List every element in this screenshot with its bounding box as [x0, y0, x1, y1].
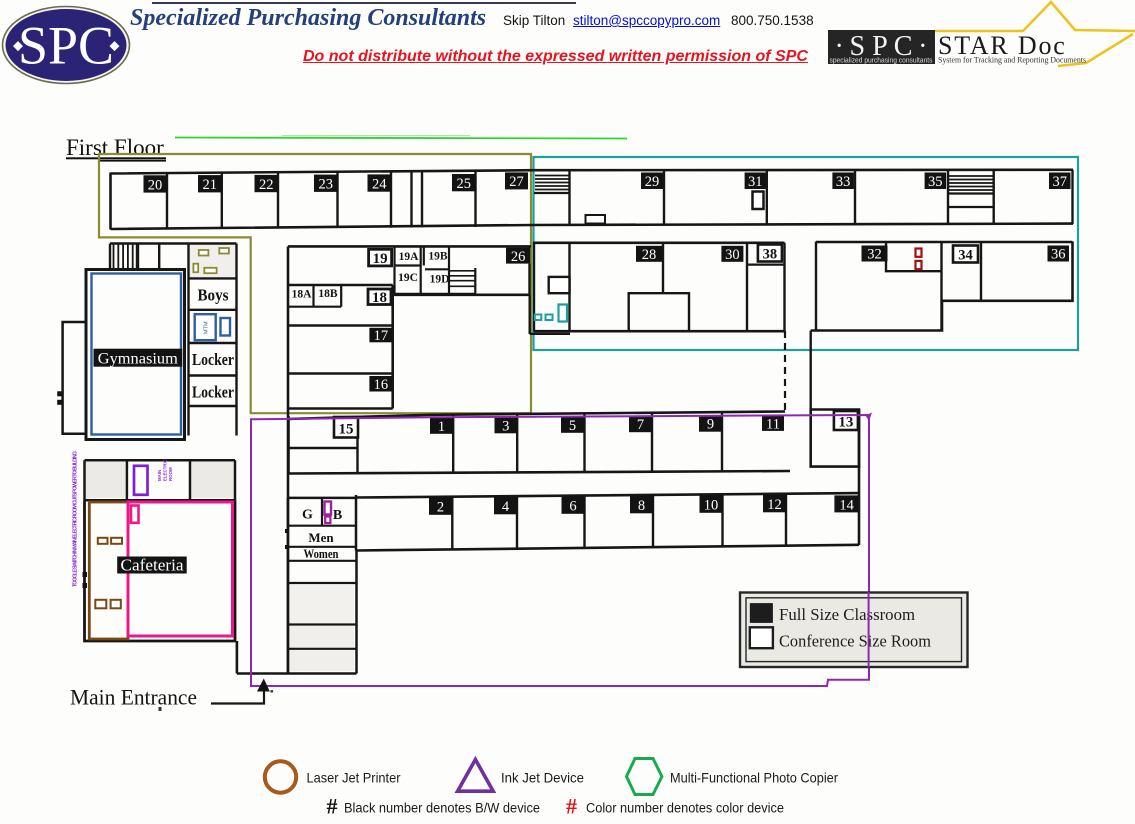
svg-text:16: 16	[374, 377, 389, 393]
svg-text:TOGGLE SWITCH IN MAIN ELECTRIC: TOGGLE SWITCH IN MAIN ELECTRIC ROOM CUTS…	[73, 451, 79, 587]
svg-text:19D: 19D	[430, 274, 450, 286]
svg-text:19B: 19B	[428, 251, 448, 263]
svg-text:#: #	[327, 794, 338, 819]
svg-text:ROOM: ROOM	[168, 467, 173, 481]
svg-text:33: 33	[836, 174, 851, 190]
svg-text:29: 29	[645, 174, 660, 190]
svg-text:27: 27	[509, 174, 524, 190]
svg-text:18A: 18A	[292, 289, 313, 301]
svg-text:3: 3	[502, 418, 509, 434]
svg-text:35: 35	[928, 174, 943, 190]
svg-text:19C: 19C	[398, 272, 418, 284]
svg-text:37: 37	[1052, 174, 1067, 190]
svg-text:24: 24	[372, 176, 387, 192]
svg-text:15: 15	[339, 422, 354, 438]
svg-text:ELECTRIC: ELECTRIC	[163, 458, 168, 481]
svg-text:Gymnasium: Gymnasium	[98, 351, 179, 368]
svg-text:Locker: Locker	[192, 383, 234, 402]
svg-text:22: 22	[259, 177, 274, 193]
svg-text:Locker: Locker	[192, 350, 234, 369]
svg-text:Boys: Boys	[198, 286, 230, 305]
svg-text:12: 12	[767, 497, 782, 513]
svg-text:19A: 19A	[399, 251, 420, 263]
svg-text:First Floor: First Floor	[66, 135, 164, 160]
svg-text:18: 18	[372, 290, 387, 306]
svg-text:28: 28	[642, 247, 657, 263]
svg-text:14: 14	[839, 497, 854, 513]
svg-text:◆: ◆	[13, 38, 23, 53]
svg-text:MAIN: MAIN	[157, 470, 162, 481]
svg-text:31: 31	[748, 174, 763, 190]
svg-text:7: 7	[637, 417, 644, 433]
svg-text:G: G	[302, 508, 313, 523]
svg-text:◆: ◆	[110, 38, 120, 53]
svg-text:19: 19	[373, 251, 388, 267]
svg-text:25: 25	[456, 176, 471, 192]
svg-text:5: 5	[569, 418, 576, 434]
svg-text:Conference Size Room: Conference Size Room	[779, 632, 931, 651]
svg-text:Women: Women	[304, 546, 340, 561]
svg-text:6: 6	[569, 498, 576, 514]
svg-text:Black number denotes B/W devic: Black number denotes B/W device	[344, 801, 540, 816]
svg-text:Full Size Classroom: Full Size Classroom	[779, 605, 915, 624]
svg-text:20: 20	[148, 177, 163, 193]
svg-text:23: 23	[318, 177, 333, 193]
svg-text:38: 38	[763, 247, 778, 263]
svg-text:MTM: MTM	[204, 321, 210, 334]
svg-text:#: #	[566, 794, 577, 819]
svg-text:Ink Jet Device: Ink Jet Device	[501, 770, 584, 786]
svg-text:SPC: SPC	[18, 16, 114, 76]
svg-text:21: 21	[202, 177, 217, 193]
svg-text:10: 10	[704, 497, 719, 513]
svg-text:13: 13	[838, 415, 853, 431]
svg-text:Main Entrance: Main Entrance	[70, 685, 197, 710]
svg-text:2: 2	[437, 499, 444, 515]
svg-text:11: 11	[766, 416, 780, 432]
svg-text:34: 34	[958, 248, 973, 264]
svg-text:Multi-Functional Photo Copier: Multi-Functional Photo Copier	[670, 770, 838, 786]
svg-text:8: 8	[638, 498, 645, 514]
svg-text:26: 26	[511, 249, 526, 265]
svg-text:1: 1	[438, 419, 445, 435]
svg-text:32: 32	[867, 247, 882, 263]
svg-text:Color number denotes color dev: Color number denotes color device	[586, 801, 784, 816]
svg-text:Men: Men	[308, 530, 334, 545]
svg-text:17: 17	[374, 328, 389, 344]
svg-text:18B: 18B	[318, 288, 338, 300]
svg-text:Cafeteria: Cafeteria	[121, 556, 185, 575]
svg-text:Laser Jet Printer: Laser Jet Printer	[307, 770, 401, 786]
svg-text:specialized purchasing consult: specialized purchasing consultants	[830, 58, 933, 65]
svg-text:36: 36	[1051, 247, 1066, 263]
svg-text:B: B	[333, 508, 342, 523]
svg-text:30: 30	[725, 247, 740, 263]
svg-text:9: 9	[707, 417, 714, 433]
svg-text:4: 4	[502, 499, 510, 515]
svg-text:System for Tracking and Report: System for Tracking and Reporting Docume…	[938, 56, 1086, 65]
